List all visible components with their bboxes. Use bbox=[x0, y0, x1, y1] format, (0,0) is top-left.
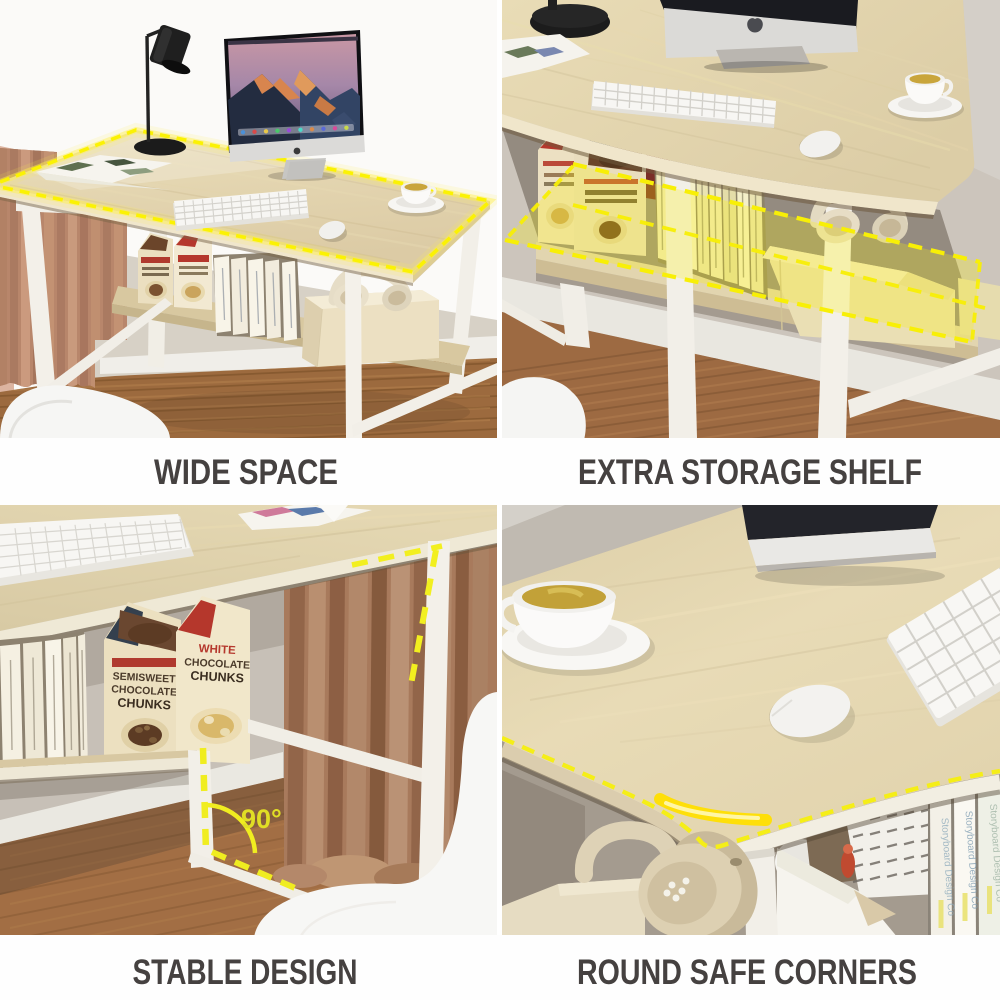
svg-text:EXTRA STORAGE SHELF: EXTRA STORAGE SHELF bbox=[578, 453, 922, 492]
svg-text:90°: 90° bbox=[241, 804, 282, 834]
svg-text:WIDE SPACE: WIDE SPACE bbox=[154, 453, 338, 492]
svg-text:CHUNKS: CHUNKS bbox=[190, 669, 244, 686]
svg-text:STABLE DESIGN: STABLE DESIGN bbox=[133, 953, 358, 992]
svg-text:ROUND SAFE CORNERS: ROUND SAFE CORNERS bbox=[577, 953, 917, 992]
svg-text:WHITE: WHITE bbox=[198, 643, 236, 657]
svg-text:CHUNKS: CHUNKS bbox=[117, 696, 171, 713]
